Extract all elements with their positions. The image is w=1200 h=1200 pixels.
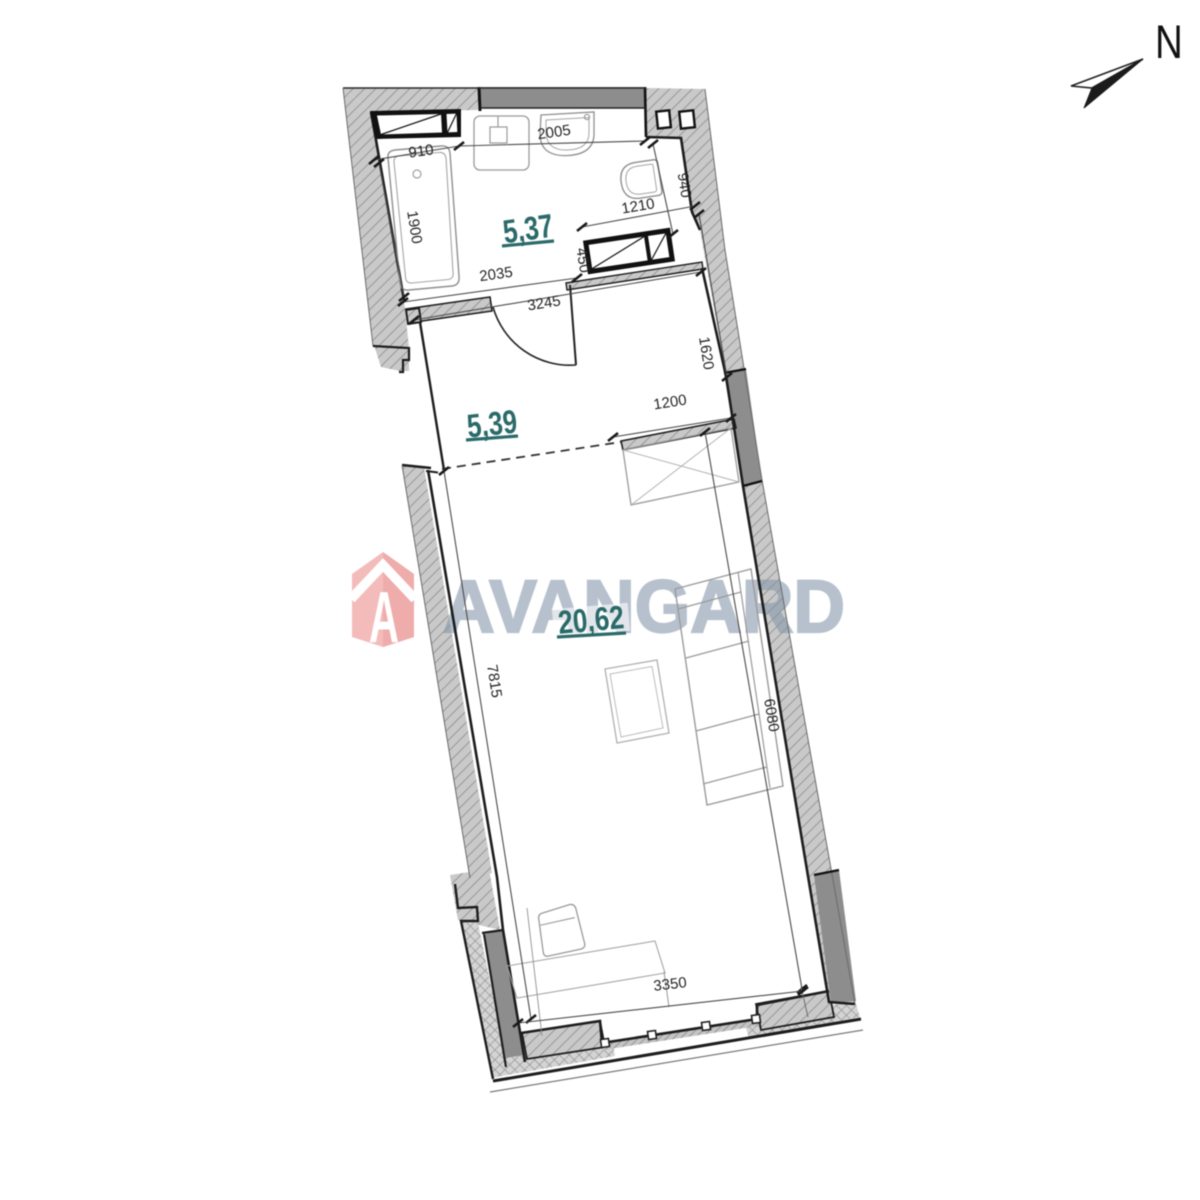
svg-text:N: N: [1155, 16, 1183, 68]
svg-text:A: A: [369, 578, 399, 658]
svg-text:910: 910: [407, 141, 434, 161]
